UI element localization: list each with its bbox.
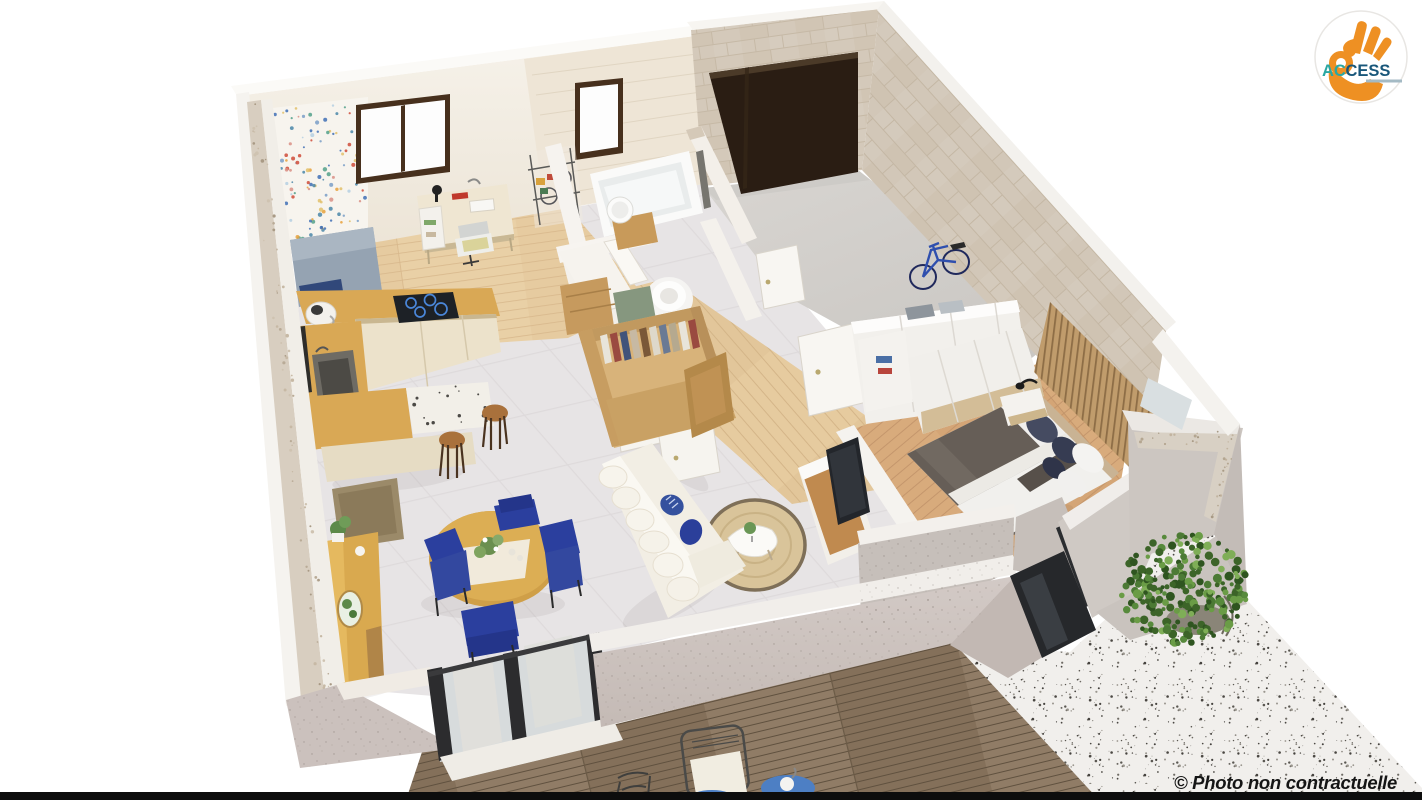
svg-text:AC: AC bbox=[1322, 62, 1346, 80]
svg-text:CESS: CESS bbox=[1346, 62, 1391, 80]
svg-text:© Photo non contractuelle: © Photo non contractuelle bbox=[1174, 772, 1397, 793]
